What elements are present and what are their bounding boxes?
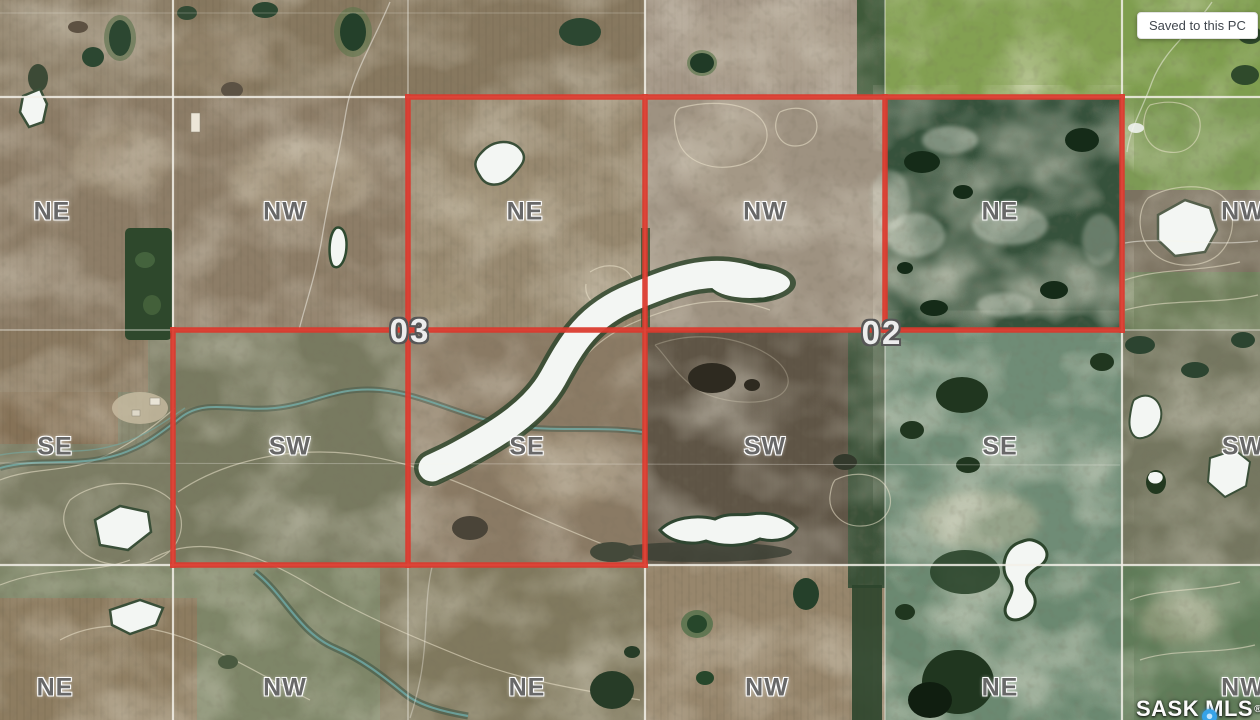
- watermark-sask-text: SASK: [1136, 696, 1199, 720]
- texture-overlay: [0, 0, 1260, 720]
- watermark-registered-mark: ®: [1254, 704, 1260, 715]
- map-viewport[interactable]: NENWNENWNENWSESWSESWSESWNENWNENWNENW0302…: [0, 0, 1260, 720]
- saved-tooltip: Saved to this PC: [1137, 12, 1258, 39]
- satellite-imagery: [0, 0, 1260, 720]
- saskmls-watermark: SASK MLS ®: [1136, 696, 1260, 720]
